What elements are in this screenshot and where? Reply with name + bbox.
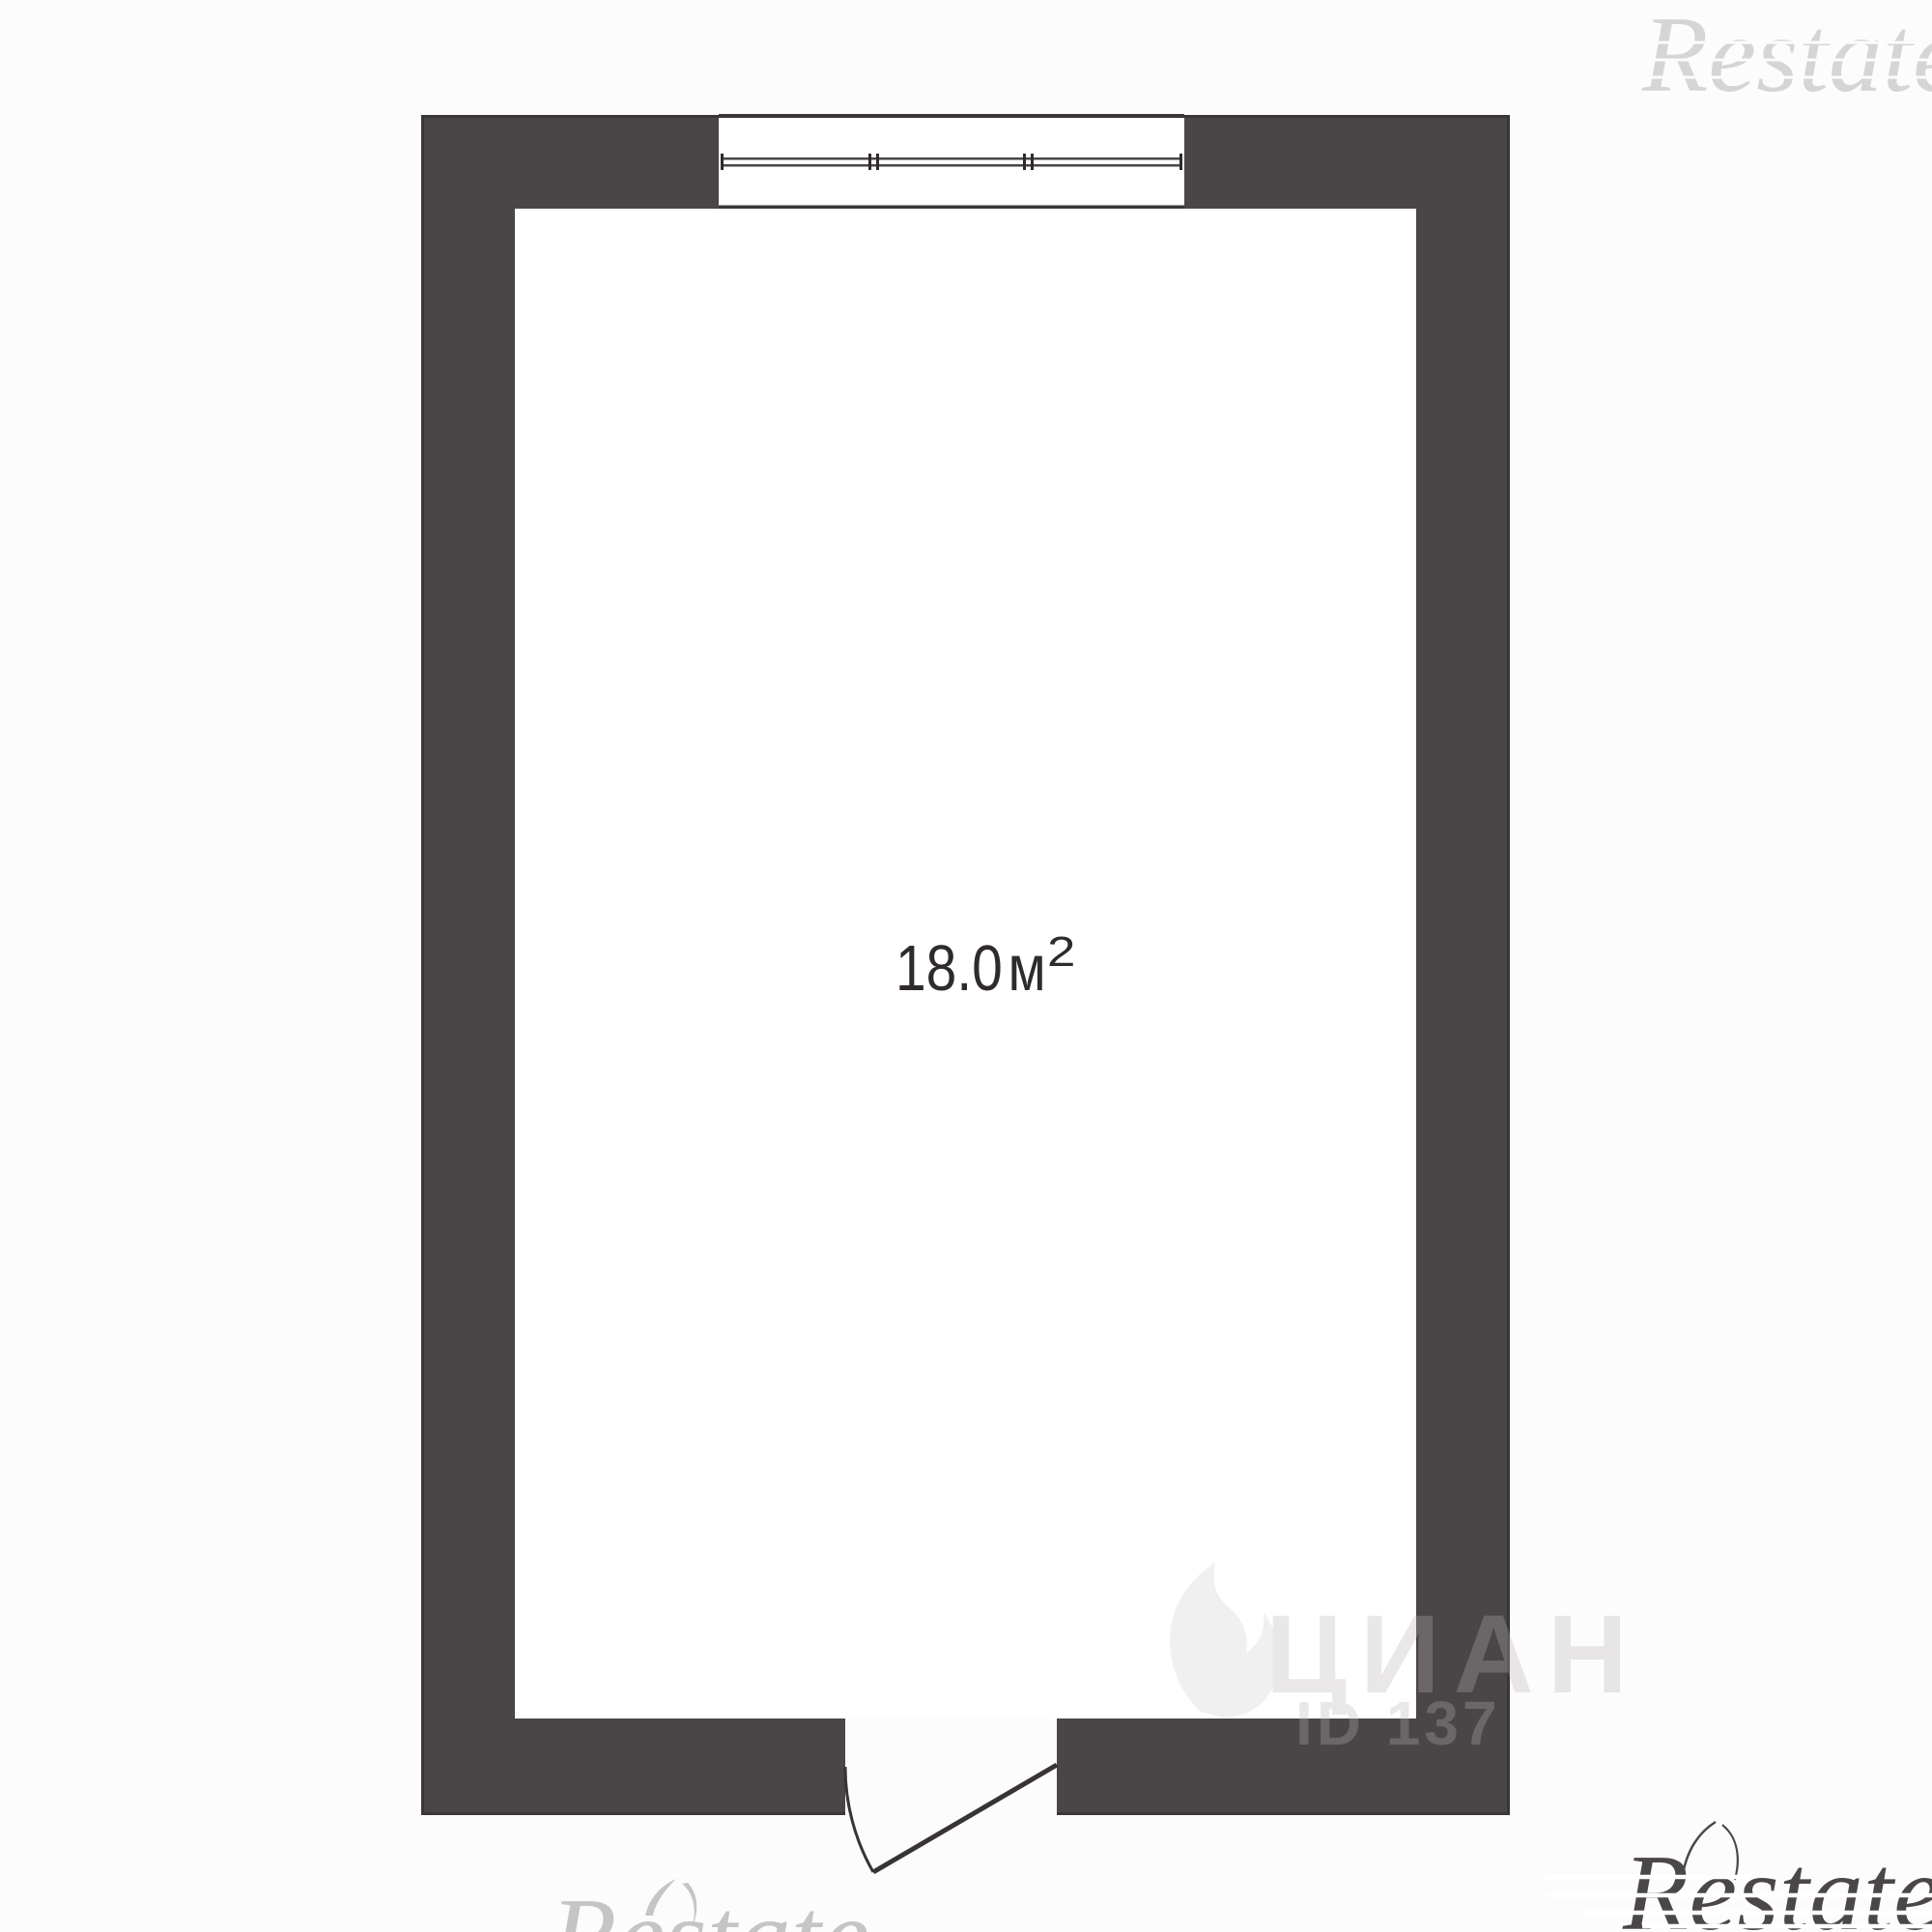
svg-text:Restate: Restate [550,1877,869,1932]
